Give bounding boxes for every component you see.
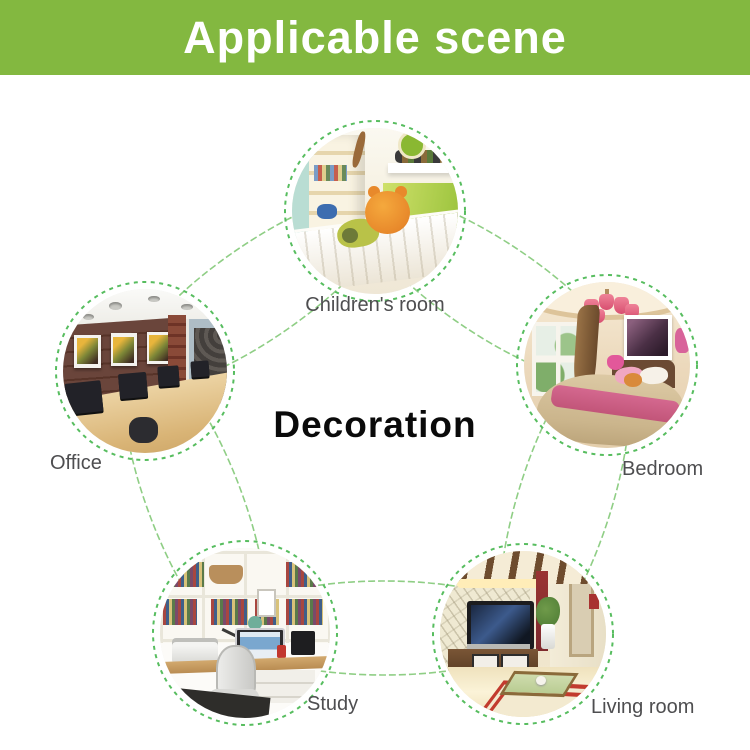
bedroom-pink-accent bbox=[675, 328, 690, 353]
children-wall-shelf bbox=[388, 163, 458, 173]
living-vase bbox=[541, 624, 554, 649]
label-study: Study bbox=[307, 693, 358, 716]
living-room-photo bbox=[440, 551, 606, 717]
office-monitor bbox=[157, 365, 180, 386]
office-monitor bbox=[65, 381, 104, 416]
label-bedroom: Bedroom bbox=[622, 458, 703, 481]
infographic-canvas: Applicable scene Decoration bbox=[0, 0, 750, 750]
label-office: Office bbox=[50, 452, 102, 475]
children-shelf-books bbox=[314, 165, 347, 182]
living-plant bbox=[536, 597, 559, 627]
living-door-frame bbox=[569, 574, 593, 656]
study-photo bbox=[160, 548, 330, 718]
study-books bbox=[286, 562, 323, 588]
office-photo bbox=[63, 289, 227, 453]
chandelier-shade bbox=[599, 294, 614, 311]
living-cove-light bbox=[457, 579, 543, 587]
study-books bbox=[163, 599, 197, 625]
office-picture-frame bbox=[74, 335, 100, 368]
office-monitor bbox=[190, 361, 209, 379]
study-books bbox=[211, 599, 248, 625]
label-living-room: Living room bbox=[591, 696, 694, 719]
bedroom-plush-toy bbox=[624, 373, 642, 386]
pooh-plush-pillow bbox=[365, 191, 410, 234]
study-red-cup bbox=[277, 645, 286, 659]
bedroom-wall-art bbox=[624, 315, 672, 360]
living-wall-ornament bbox=[589, 594, 599, 609]
children-room-photo bbox=[292, 128, 458, 294]
living-tv bbox=[467, 601, 535, 651]
children-wall-decal-orange bbox=[431, 138, 444, 151]
children-wall-decal-green bbox=[398, 131, 426, 159]
study-second-monitor bbox=[291, 631, 315, 655]
office-picture-frame bbox=[111, 333, 137, 366]
bedroom-pink-lamp bbox=[607, 355, 624, 370]
children-shelf-toy bbox=[317, 204, 337, 219]
study-photo-frame bbox=[257, 589, 276, 617]
study-books bbox=[163, 562, 204, 588]
children-plush-toy-head bbox=[342, 228, 359, 243]
office-spotlight bbox=[148, 296, 159, 303]
office-chair bbox=[129, 417, 159, 443]
bedroom-photo bbox=[524, 282, 690, 448]
study-books bbox=[286, 599, 323, 625]
office-monitor bbox=[118, 371, 148, 398]
office-spotlight bbox=[181, 304, 192, 311]
study-shelf-basket bbox=[209, 565, 243, 584]
label-children-room: Children's room bbox=[275, 294, 475, 317]
